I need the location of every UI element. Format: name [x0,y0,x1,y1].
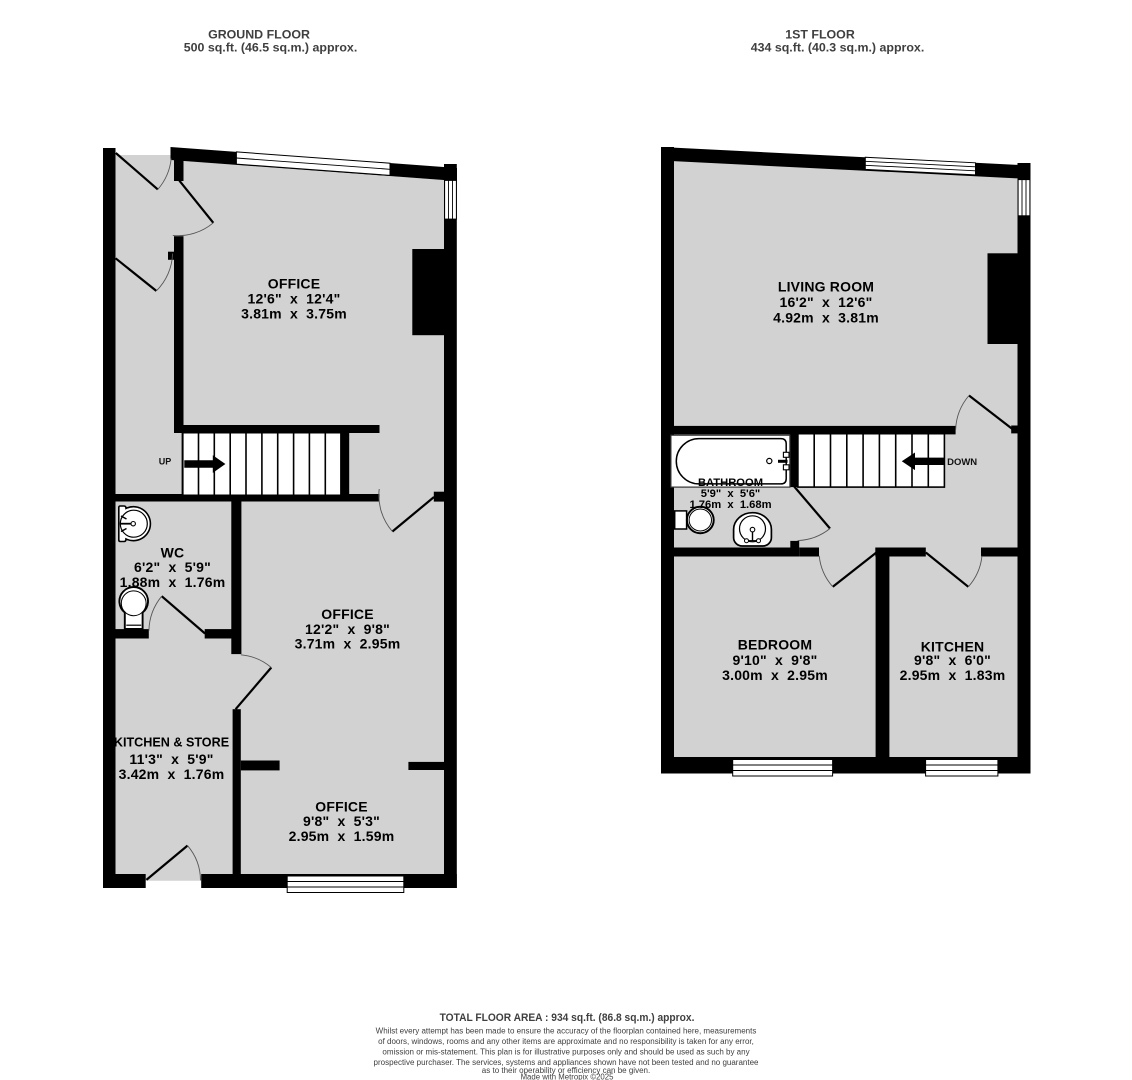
svg-text:1ST FLOOR: 1ST FLOOR [785,27,855,41]
svg-text:Whilst every attempt has been: Whilst every attempt has been made to en… [376,1027,757,1036]
svg-text:9'8" x 5'3": 9'8" x 5'3" [303,813,380,829]
svg-text:2.95m x 1.59m: 2.95m x 1.59m [289,828,395,844]
svg-text:BEDROOM: BEDROOM [738,637,813,653]
svg-text:3.00m x 2.95m: 3.00m x 2.95m [722,667,828,683]
svg-text:OFFICE: OFFICE [268,276,321,292]
svg-text:DOWN: DOWN [947,457,977,468]
svg-text:500 sq.ft. (46.5 sq.m.) approx: 500 sq.ft. (46.5 sq.m.) approx. [184,41,358,55]
svg-text:TOTAL FLOOR AREA : 934 sq.ft.: TOTAL FLOOR AREA : 934 sq.ft. (86.8 sq.m… [440,1012,695,1025]
svg-text:9'10" x 9'8": 9'10" x 9'8" [732,652,817,668]
svg-text:UP: UP [159,457,172,467]
svg-text:1.88m x 1.76m: 1.88m x 1.76m [120,574,226,590]
svg-text:2.95m x 1.83m: 2.95m x 1.83m [900,667,1006,683]
svg-text:4.92m x 3.81m: 4.92m x 3.81m [773,309,879,325]
svg-text:6'2" x 5'9": 6'2" x 5'9" [134,559,211,575]
svg-text:9'8" x 6'0": 9'8" x 6'0" [914,652,991,668]
svg-text:434 sq.ft. (40.3 sq.m.) approx: 434 sq.ft. (40.3 sq.m.) approx. [751,41,925,55]
svg-text:KITCHEN & STORE: KITCHEN & STORE [114,736,229,750]
svg-text:3.81m x 3.75m: 3.81m x 3.75m [241,306,347,322]
svg-text:LIVING ROOM: LIVING ROOM [778,278,874,294]
svg-text:Made with Metropix ©2025: Made with Metropix ©2025 [521,1072,615,1080]
svg-text:12'6" x 12'4": 12'6" x 12'4" [248,291,341,307]
svg-text:omission or mis-statement. Thi: omission or mis-statement. This plan is … [382,1048,749,1057]
svg-text:of doors, windows, rooms and a: of doors, windows, rooms and any other i… [378,1037,754,1046]
svg-text:GROUND FLOOR: GROUND FLOOR [208,27,310,41]
svg-text:1.76m x 1.68m: 1.76m x 1.68m [689,499,771,511]
svg-text:16'2" x 12'6": 16'2" x 12'6" [780,294,873,310]
svg-text:3.71m x 2.95m: 3.71m x 2.95m [295,636,401,652]
svg-text:12'2" x 9'8": 12'2" x 9'8" [305,621,390,637]
svg-text:3.42m x 1.76m: 3.42m x 1.76m [119,766,225,782]
svg-text:OFFICE: OFFICE [315,799,368,815]
svg-text:11'3" x 5'9": 11'3" x 5'9" [129,751,213,767]
svg-text:OFFICE: OFFICE [321,606,374,622]
